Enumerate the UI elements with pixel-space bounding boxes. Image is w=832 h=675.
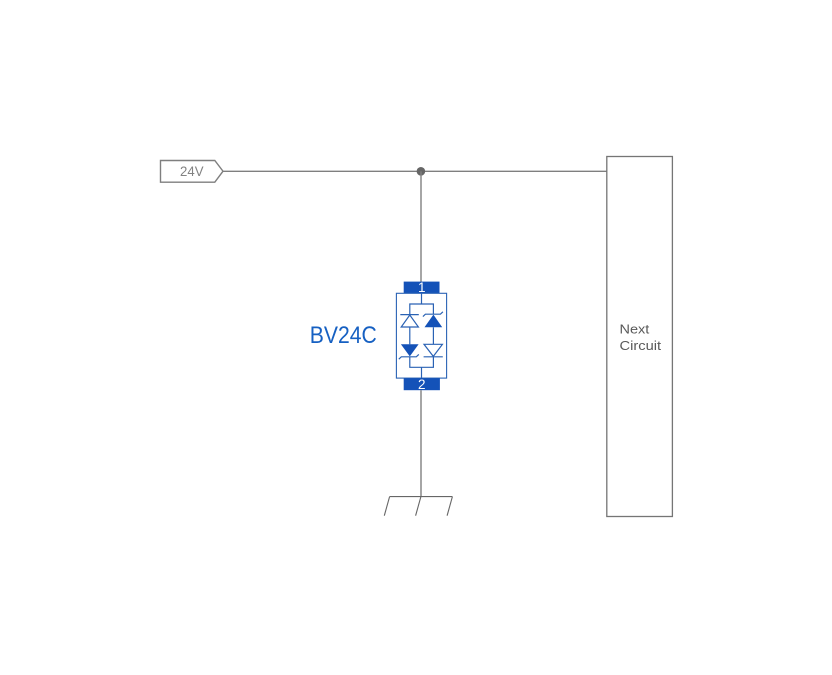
svg-text:2: 2 xyxy=(418,377,426,392)
svg-text:BV24C: BV24C xyxy=(310,322,377,349)
svg-text:24V: 24V xyxy=(180,164,204,179)
svg-text:Circuit: Circuit xyxy=(620,338,662,353)
svg-text:Next: Next xyxy=(620,322,650,337)
